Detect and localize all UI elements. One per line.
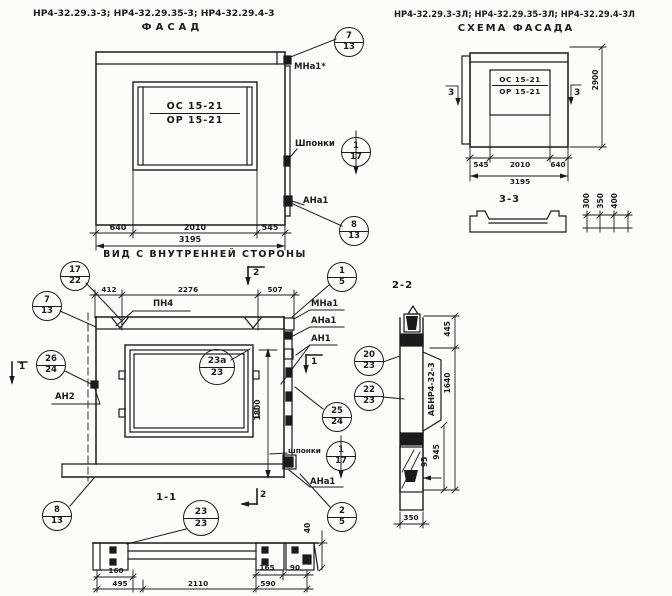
callout-25-24: 2524 xyxy=(322,402,352,432)
section11-leaders xyxy=(70,478,186,544)
label-ana1-inner-bottom: АНа1 xyxy=(310,478,335,487)
label-pn4: ПН4 xyxy=(153,300,173,309)
section-marker-1-left: 1 xyxy=(19,363,25,372)
section22-leaders xyxy=(383,356,404,399)
callout-1-5: 15 xyxy=(327,262,357,292)
title-facade: ФАСАД xyxy=(115,23,230,34)
label-shponki-inner: шпонки xyxy=(288,447,321,455)
dim-165: 165 xyxy=(256,564,278,572)
title-scheme: СХЕМА ФАСАДА xyxy=(436,24,596,35)
dim-40: 40 xyxy=(304,516,312,540)
callout-26-24: 2624 xyxy=(36,350,66,380)
window-mark-bottom: ОР 15-21 xyxy=(150,114,240,126)
callout-8-13-bottom: 813 xyxy=(42,501,72,531)
dim-545: 545 xyxy=(256,224,284,232)
section-marker-2-bottom: 2 xyxy=(260,491,266,500)
dim-350: 350 xyxy=(398,514,424,522)
label-ana1-inner-top: АНа1 xyxy=(311,317,336,326)
title-section-3-3: 3-3 xyxy=(499,195,520,206)
section-marker-3-right: 3 xyxy=(574,89,580,98)
dim-2900: 2900 xyxy=(592,63,600,97)
dim-3195: 3195 xyxy=(506,178,534,186)
section-marker-1-right: 1 xyxy=(311,358,317,367)
panel-mark-abnr: АБНР4-32-3 xyxy=(428,354,436,424)
dim-507: 507 xyxy=(260,286,290,294)
title-series-right: НР4-32.29.3-3Л; НР4-32.29.35-3Л; НР4-32.… xyxy=(394,10,635,19)
title-series-left: НР4-32.29.3-3; НР4-32.29.35-3; НР4-32.29… xyxy=(33,9,274,19)
dim-2110: 2110 xyxy=(183,580,213,588)
callout-23-23: 2323 xyxy=(183,500,219,536)
callout-1-17-facade: 117 xyxy=(341,137,371,167)
dim-2276: 2276 xyxy=(170,286,206,294)
dim-3195: 3195 xyxy=(172,236,208,244)
callout-22-23: 2223 xyxy=(354,381,384,411)
window-mark-top: ОС 15-21 xyxy=(492,75,548,86)
dim-640: 640 xyxy=(104,224,132,232)
callout-8-13-facade: 813 xyxy=(339,216,369,246)
dim-495: 495 xyxy=(108,580,132,588)
title-inner-view: ВИД С ВНУТРЕННЕЙ СТОРОНЫ xyxy=(80,250,330,260)
label-mna1-inner: МНа1 xyxy=(311,300,338,309)
dim-350: 350 xyxy=(597,187,605,215)
inner-dimensions xyxy=(90,290,299,479)
section11-profile xyxy=(93,543,318,570)
label-shponki-facade: Шпонки xyxy=(295,140,335,149)
dim-1640: 1640 xyxy=(444,366,452,400)
callout-20-23: 2023 xyxy=(354,346,384,376)
facade-window-mark: ОС 15-21 ОР 15-21 xyxy=(150,101,240,126)
label-ana1-facade: АНа1 xyxy=(303,197,328,206)
title-section-1-1: 1-1 xyxy=(156,493,177,504)
facade-outline xyxy=(96,52,292,225)
dim-590: 590 xyxy=(256,580,280,588)
dim-545: 545 xyxy=(471,161,491,169)
dim-2010: 2010 xyxy=(178,224,212,232)
section-marker-3-left: 3 xyxy=(448,89,454,98)
label-mna1-facade: МНа1* xyxy=(294,63,326,72)
dim-640: 640 xyxy=(548,161,568,169)
dim-90: 90 xyxy=(286,564,304,572)
section33-profile xyxy=(470,211,566,232)
dim-945: 945 xyxy=(433,435,441,469)
drawing-sheet: НР4-32.29.3-3; НР4-32.29.35-3; НР4-32.29… xyxy=(0,0,672,596)
label-an2: АН2 xyxy=(55,393,75,402)
dim-300: 300 xyxy=(583,187,591,215)
scheme-window-mark: ОС 15-21 ОР 15-21 xyxy=(492,75,548,96)
callout-7-13-facade: 713 xyxy=(334,27,364,57)
dim-95: 95 xyxy=(421,450,429,474)
dim-160: 160 xyxy=(104,567,128,575)
callout-2-5: 25 xyxy=(327,502,357,532)
callout-23a-23: 23а23 xyxy=(199,349,235,385)
callout-17-22: 1722 xyxy=(60,261,90,291)
dim-412: 412 xyxy=(96,286,122,294)
window-mark-bottom: ОР 15-21 xyxy=(492,86,548,96)
dim-2010: 2010 xyxy=(506,161,534,169)
callout-7-13-inner: 713 xyxy=(32,291,62,321)
callout-1-17-inner: 117 xyxy=(326,441,356,471)
dim-400: 400 xyxy=(611,187,619,215)
title-section-2-2: 2-2 xyxy=(392,281,413,292)
window-mark-top: ОС 15-21 xyxy=(150,101,240,114)
dim-1800: 1800 xyxy=(254,393,262,427)
scheme-outline xyxy=(462,53,568,147)
section-marker-2-top: 2 xyxy=(253,269,259,278)
label-an1: АН1 xyxy=(311,335,331,344)
dim-445: 445 xyxy=(444,312,452,346)
